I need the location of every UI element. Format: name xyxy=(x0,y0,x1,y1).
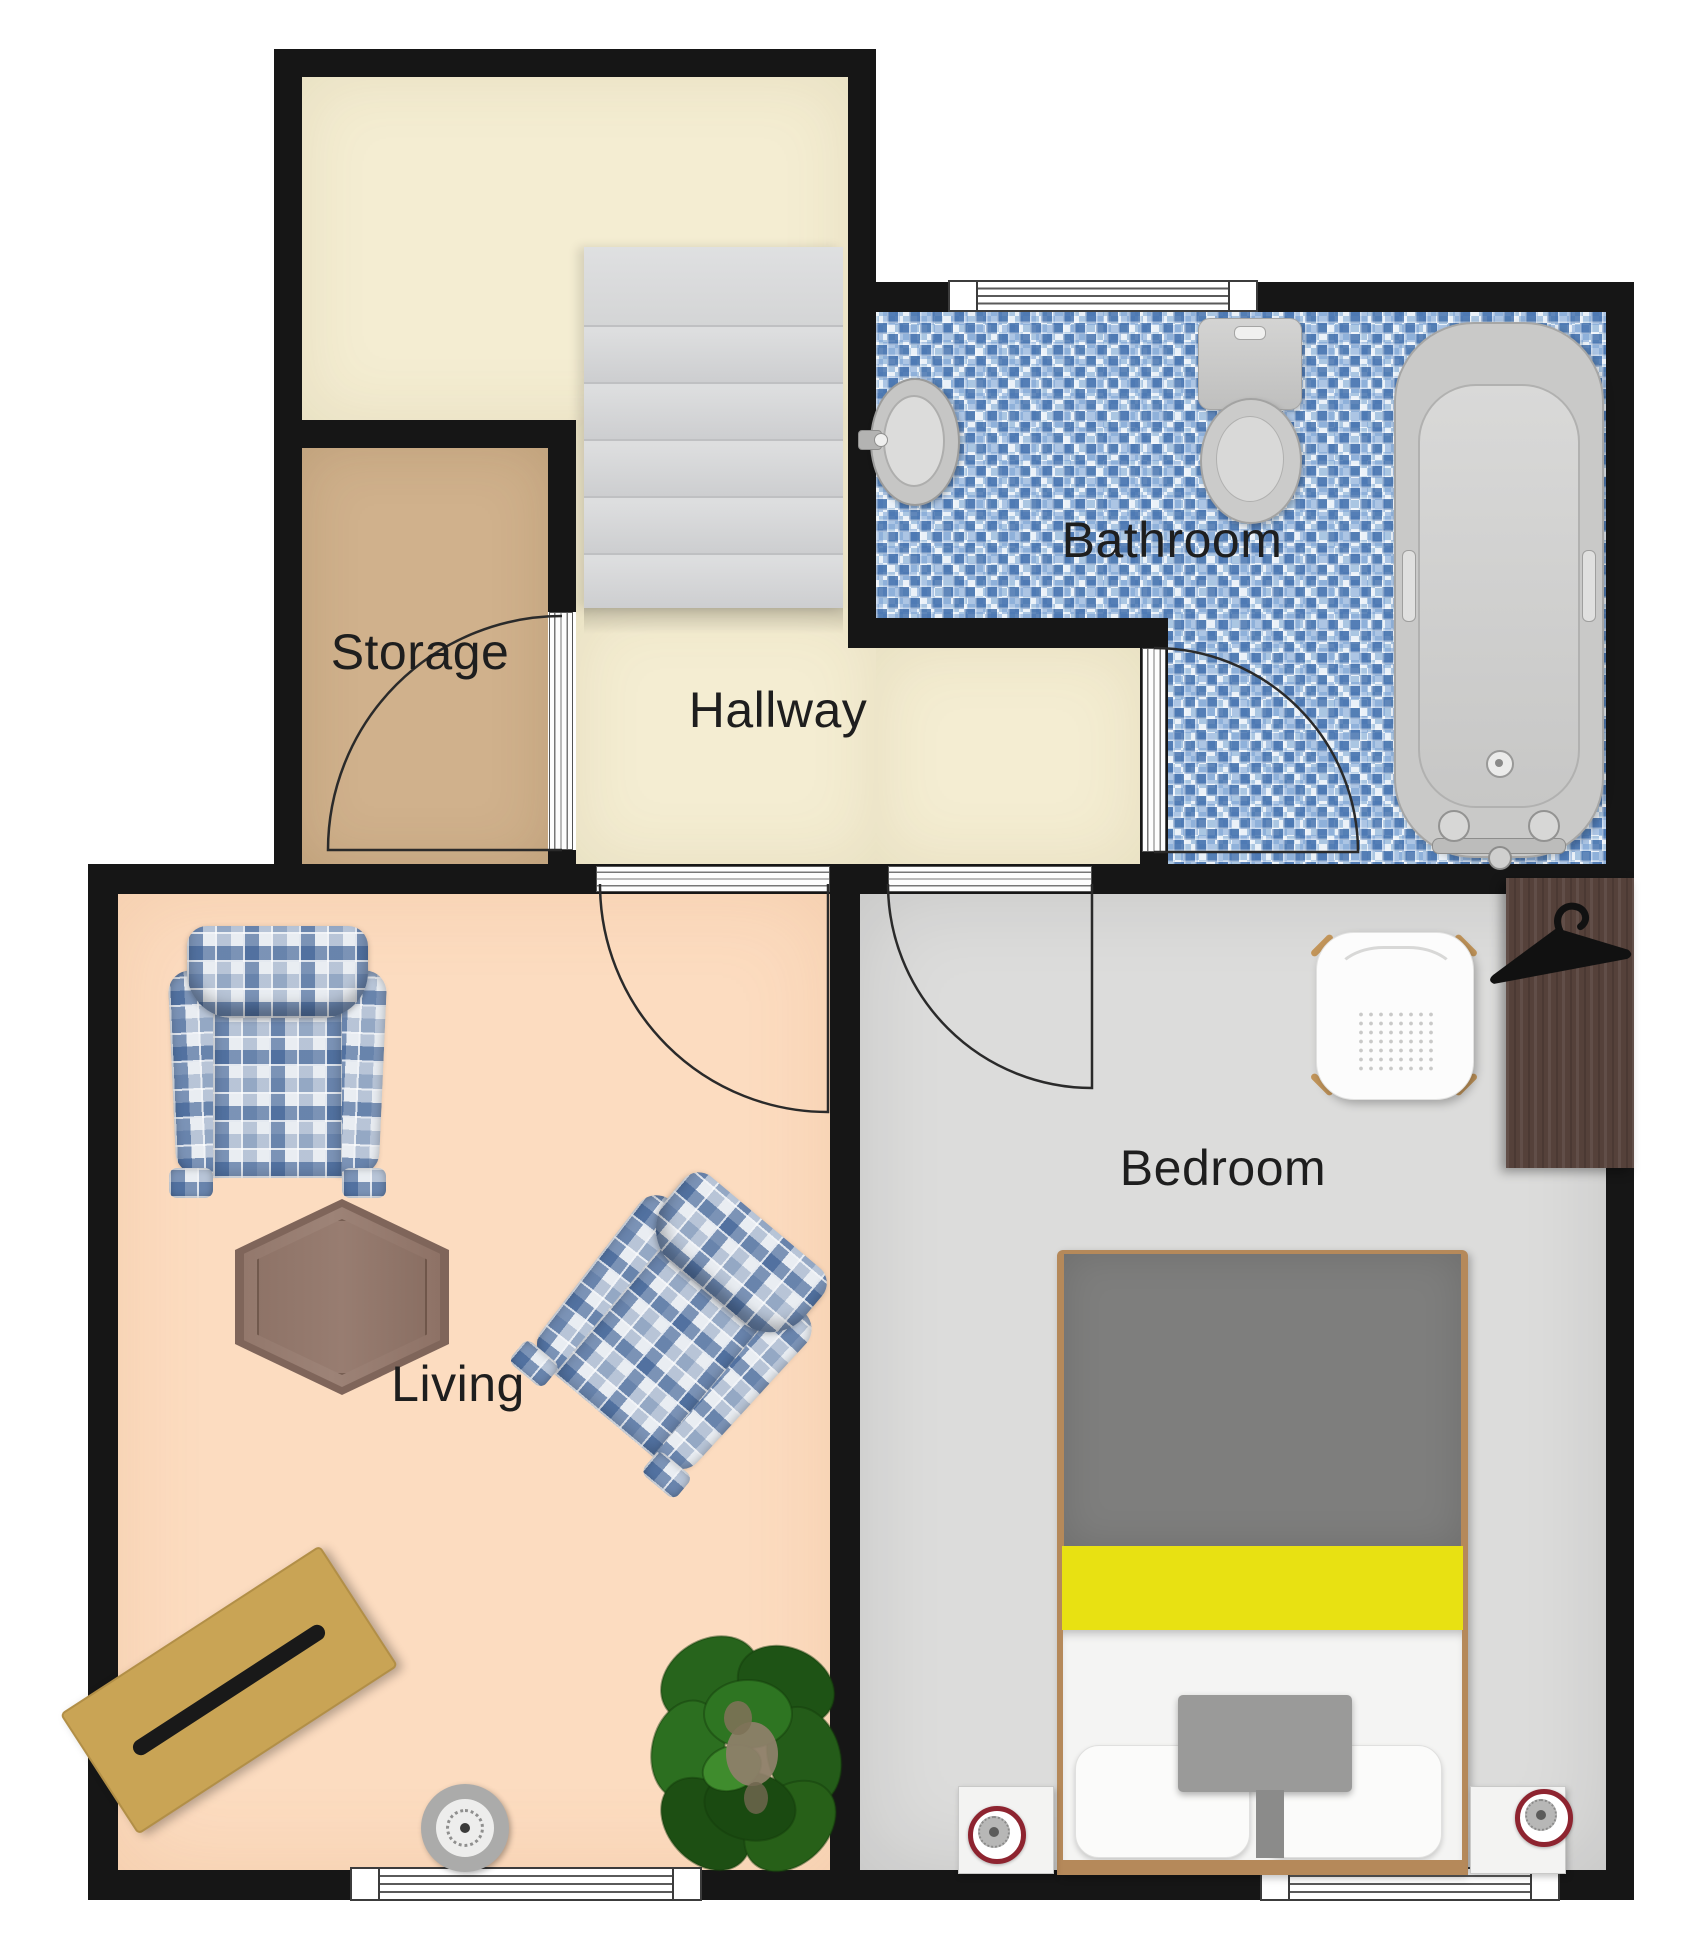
storage-label: Storage xyxy=(331,623,510,681)
bathtub xyxy=(1394,322,1604,858)
stair-tread xyxy=(584,439,843,496)
armchair-back xyxy=(187,926,368,1018)
wall-bathroom-south-west xyxy=(848,618,1168,648)
bathroom-label: Bathroom xyxy=(1062,511,1283,569)
wall-top-room-west xyxy=(274,49,302,448)
hallway-label: Hallway xyxy=(689,681,868,739)
bed-throw-pillow-gray xyxy=(1178,1695,1352,1792)
stair-tread xyxy=(584,382,843,439)
living-label: Living xyxy=(391,1355,525,1413)
floor-plan: Storage Hallway Bathroom Living Bedroom xyxy=(0,0,1708,1952)
storage-door-opening xyxy=(549,612,573,850)
bed-stripe-yellow xyxy=(1062,1546,1463,1630)
armchair-foot-left xyxy=(169,1168,213,1198)
bed-throw-tail xyxy=(1256,1790,1284,1858)
bathtub-handle-right xyxy=(1582,550,1596,622)
staircase xyxy=(584,247,843,608)
table-lamp-left xyxy=(968,1806,1026,1864)
toilet-flush-button xyxy=(1234,326,1266,340)
sink-faucet-knob xyxy=(874,433,888,447)
bathtub-basin xyxy=(1418,384,1580,808)
double-bed xyxy=(1057,1250,1468,1875)
sink-basin-inner xyxy=(883,395,945,487)
bathtub-handle-left xyxy=(1402,550,1416,622)
chair-back-crease xyxy=(1332,946,1460,1016)
bed-blanket-gray xyxy=(1064,1254,1461,1546)
stair-tread xyxy=(584,496,843,553)
potted-plant xyxy=(648,1628,848,1874)
round-speaker xyxy=(421,1784,509,1872)
bathroom-door-opening xyxy=(1142,648,1166,852)
wall-top-room-north xyxy=(274,49,876,77)
pedestal-sink xyxy=(870,378,956,502)
lamp-bulb xyxy=(989,1827,999,1837)
wall-storage-east xyxy=(548,420,576,612)
armchair-foot-right xyxy=(342,1168,386,1198)
toilet-bowl-inner xyxy=(1216,416,1284,502)
stair-tread xyxy=(584,553,843,608)
bathtub-spout xyxy=(1488,846,1512,870)
bed-headboard-bar xyxy=(1057,1860,1468,1875)
bathtub-faucet-knob-left xyxy=(1438,810,1470,842)
bathroom-window xyxy=(950,280,1256,312)
wall-hallway-south xyxy=(88,864,1634,894)
armchair-seat xyxy=(213,1000,342,1178)
lamp-bulb xyxy=(1536,1810,1546,1820)
living-door-opening xyxy=(596,866,830,892)
bedroom-door-opening xyxy=(888,866,1092,892)
toilet xyxy=(1198,318,1300,522)
coat-hanger xyxy=(1474,888,1643,996)
wall-top-room-east xyxy=(848,49,876,645)
bathtub-faucet-knob-right xyxy=(1528,810,1560,842)
wall-storage-north xyxy=(274,420,576,448)
hallway-floor-east xyxy=(876,648,1140,864)
speaker-center-dot xyxy=(460,1823,470,1833)
shell-chair xyxy=(1316,932,1472,1098)
wall-storage-west xyxy=(274,448,302,864)
bathtub-drain-dot xyxy=(1495,759,1503,767)
bedroom-label: Bedroom xyxy=(1120,1139,1326,1197)
chair-seat-speckle xyxy=(1356,1010,1434,1074)
plaid-armchair xyxy=(175,926,380,1194)
stair-tread xyxy=(584,325,843,382)
table-lamp-right xyxy=(1515,1789,1573,1847)
stair-landing xyxy=(584,247,843,325)
